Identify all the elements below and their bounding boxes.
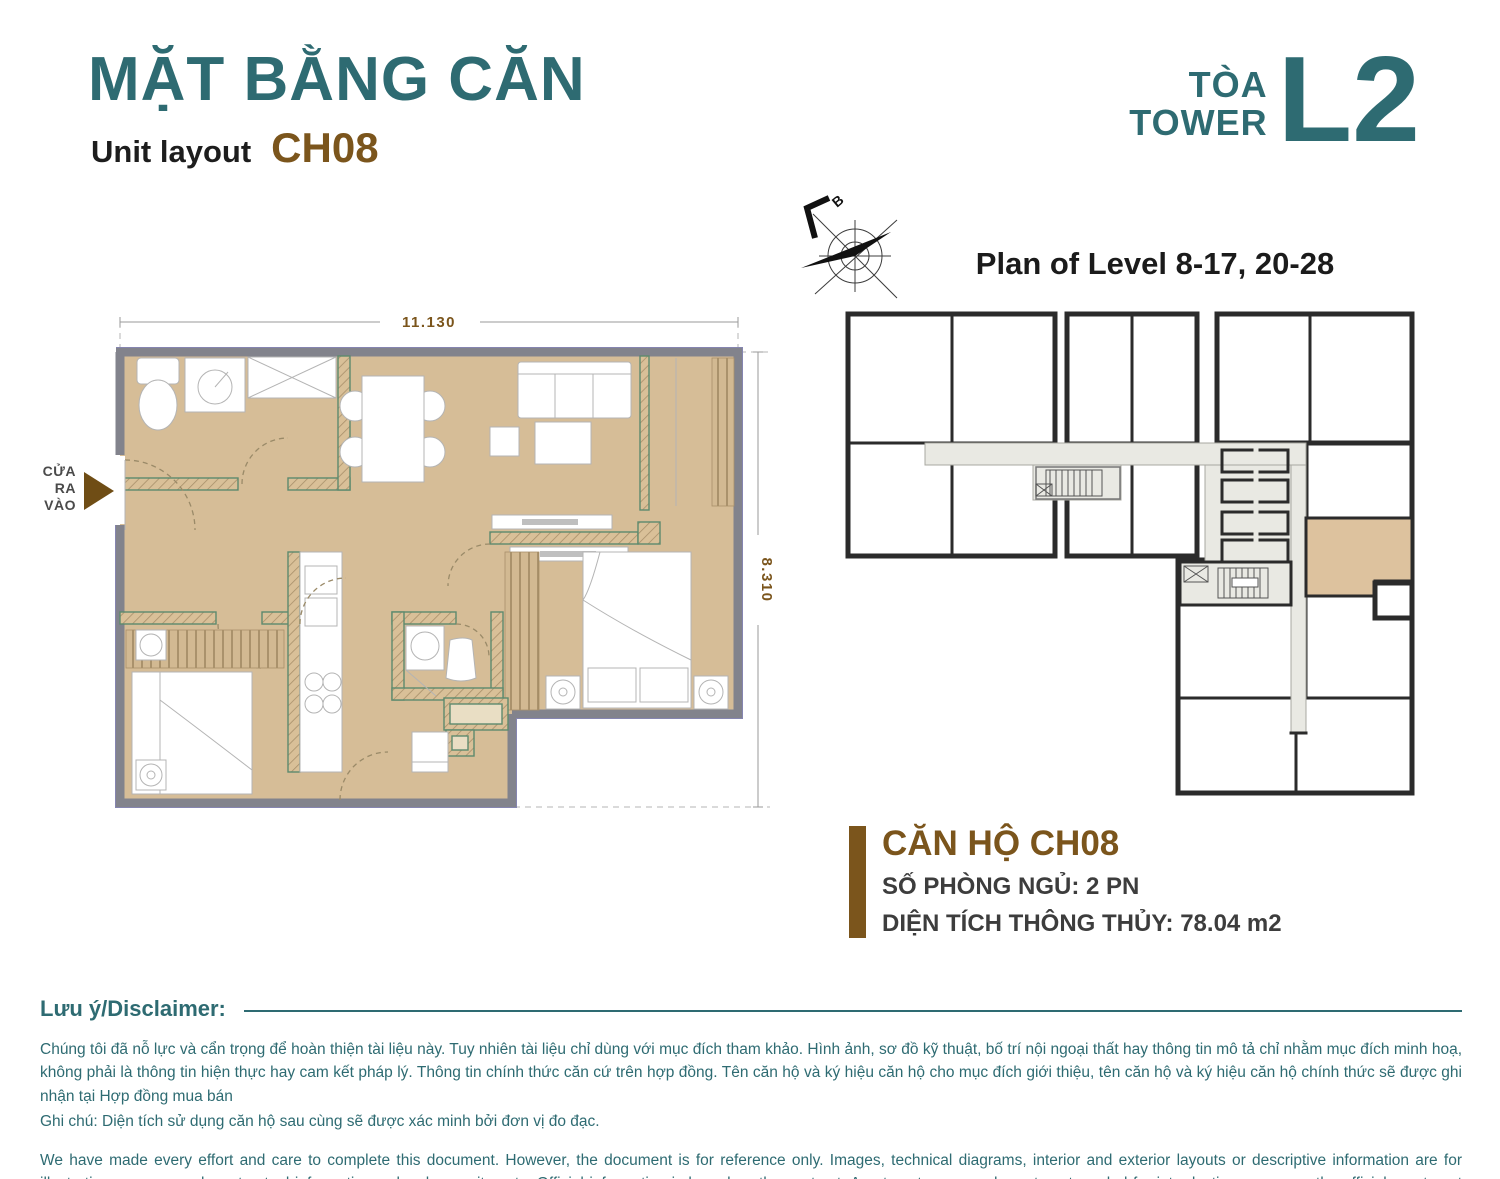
unit-name: CĂN HỘ CH08 (882, 824, 1282, 864)
floorplan-sheet: MẶT BẰNG CĂN Unit layout CH08 TÒA TOWER … (0, 0, 1500, 1179)
entrance-arrow-icon (84, 472, 114, 510)
disclaimer-vi-note: Ghi chú: Diện tích sử dụng căn hộ sau cù… (40, 1110, 1462, 1133)
dimension-top: 11.130 (120, 314, 738, 350)
compass-icon: B (793, 190, 903, 300)
disclaimer-section: Lưu ý/Disclaimer: Chúng tôi đã nỗ lực và… (40, 996, 1462, 1179)
disclaimer-en: We have made every effort and care to co… (40, 1149, 1462, 1179)
stair-core-1 (1036, 467, 1120, 499)
page-subtitle: Unit layout CH08 (91, 124, 379, 172)
disclaimer-heading: Lưu ý/Disclaimer: (40, 996, 226, 1022)
plan-level-caption: Plan of Level 8-17, 20-28 (905, 246, 1405, 282)
dim-height-label: 8.310 (758, 557, 775, 602)
tower-label-en: TOWER (1129, 104, 1267, 141)
kitchen (288, 552, 346, 772)
entrance-label: CỬA RA VÀO (43, 462, 114, 513)
tower-label-vi: TÒA (1129, 66, 1267, 103)
disclaimer-vi: Chúng tôi đã nỗ lực và cẩn trọng để hoàn… (40, 1038, 1462, 1108)
svg-text:CỬA: CỬA (43, 462, 76, 479)
unit-info: CĂN HỘ CH08 SỐ PHÒNG NGỦ: 2 PN DIỆN TÍCH… (849, 826, 1282, 938)
notch-room (1375, 583, 1412, 618)
heading-rule (244, 1010, 1462, 1012)
svg-text:RA: RA (55, 480, 76, 496)
svg-text:VÀO: VÀO (44, 497, 76, 513)
page-title: MẶT BẰNG CĂN (88, 44, 586, 115)
unit-area: DIỆN TÍCH THÔNG THỦY: 78.04 m2 (882, 910, 1282, 938)
tower-labels: TÒA TOWER (1129, 66, 1267, 147)
accent-bar (849, 826, 866, 938)
tower-code: L2 (1278, 52, 1420, 147)
unit-bedrooms: SỐ PHÒNG NGỦ: 2 PN (882, 873, 1282, 901)
unit-code: CH08 (271, 124, 378, 172)
compass-north-label: B (829, 192, 847, 211)
stair-core-2 (1180, 562, 1291, 605)
north-arrow (807, 198, 829, 238)
dim-width-label: 11.130 (402, 314, 456, 331)
subtitle-label: Unit layout (91, 134, 251, 170)
tower-keyplan (840, 300, 1420, 800)
unit-floorplan: 11.130 8.310 CỬA RA VÀO (40, 300, 820, 830)
tower-title: TÒA TOWER L2 (1129, 52, 1420, 147)
